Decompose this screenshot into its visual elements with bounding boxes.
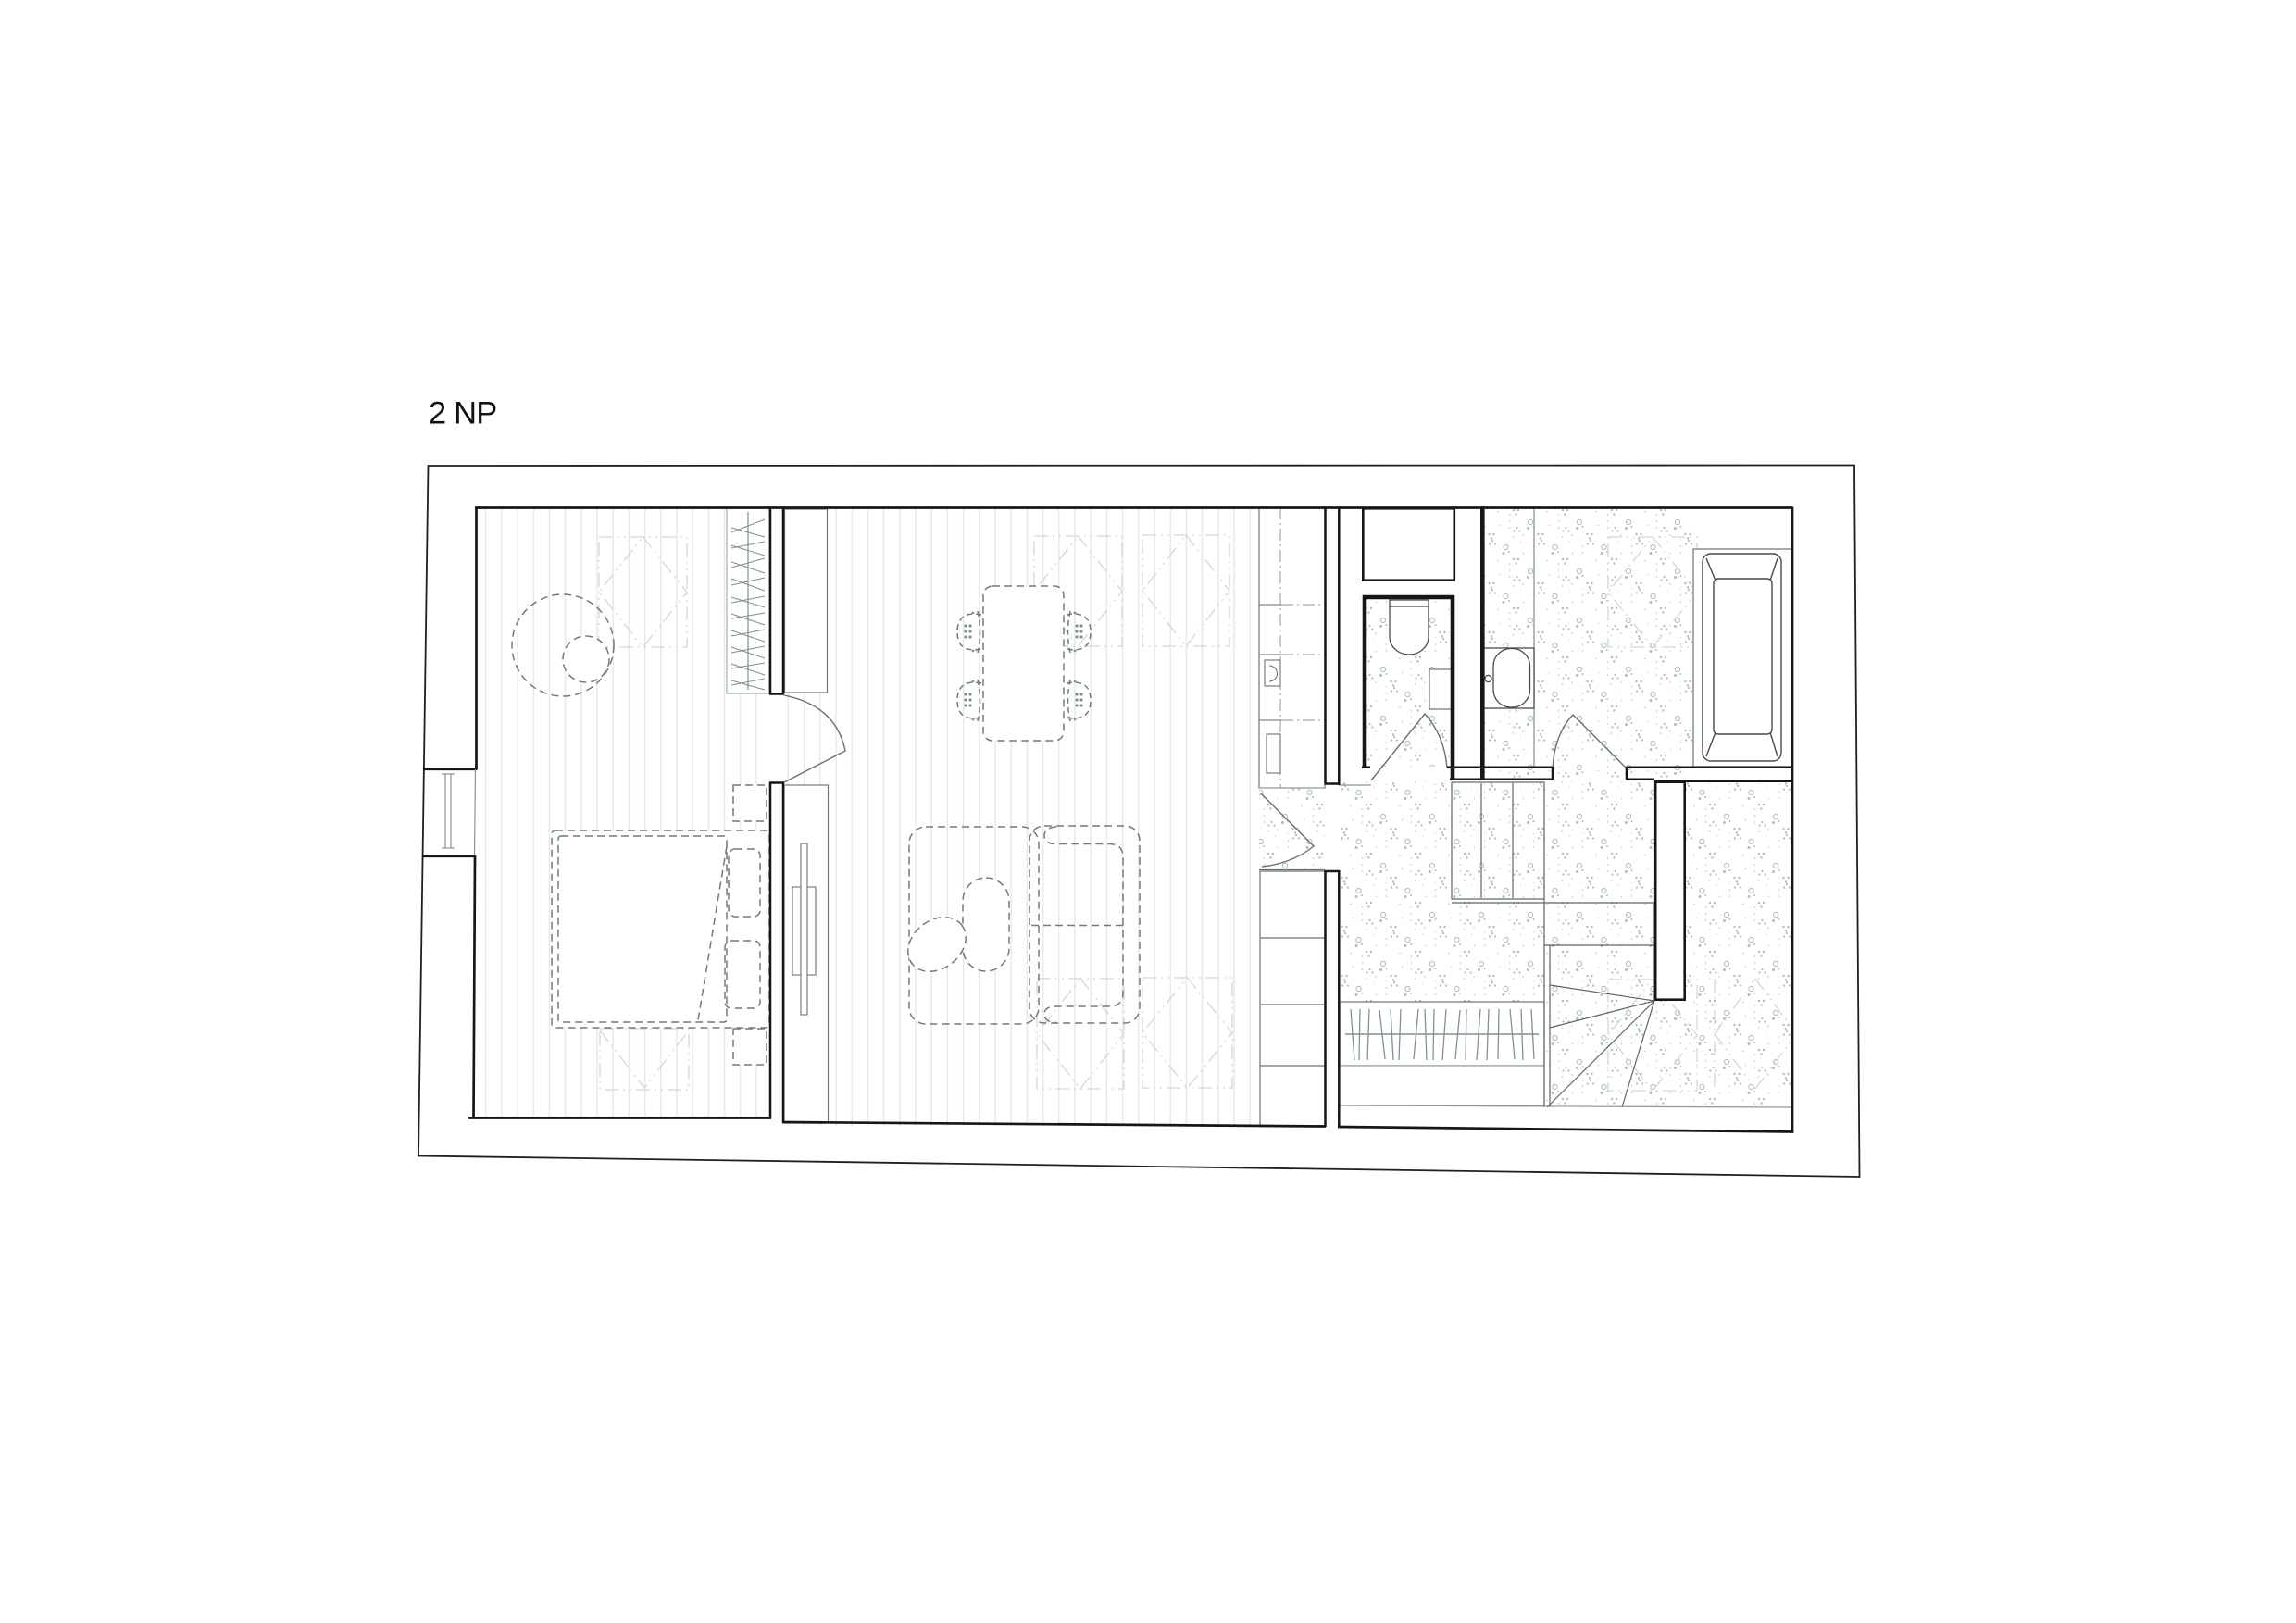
svg-text:2 NP: 2 NP (429, 396, 497, 431)
